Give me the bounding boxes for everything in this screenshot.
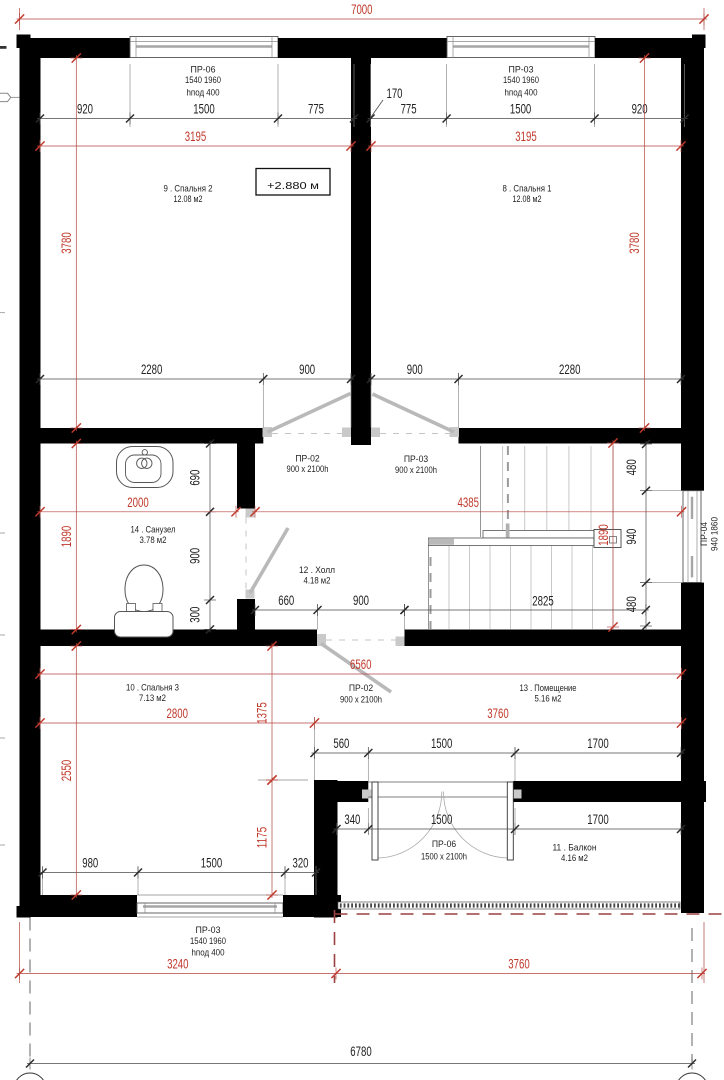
svg-text:1700: 1700: [587, 736, 608, 751]
svg-text:300: 300: [188, 607, 203, 623]
svg-text:2800: 2800: [167, 706, 188, 721]
svg-text:1375: 1375: [255, 702, 270, 723]
svg-text:3780: 3780: [627, 232, 642, 253]
svg-text:3195: 3195: [515, 129, 536, 144]
svg-text:940: 940: [624, 529, 639, 545]
svg-text:900: 900: [407, 362, 423, 377]
svg-text:ПР-06: ПР-06: [432, 839, 456, 849]
svg-text:1500: 1500: [510, 102, 531, 117]
svg-text:4385: 4385: [458, 495, 479, 510]
svg-text:ПР-06: ПР-06: [191, 65, 216, 75]
svg-text:ПР-03: ПР-03: [196, 925, 221, 935]
svg-text:ПР-03: ПР-03: [404, 454, 428, 464]
svg-text:560: 560: [333, 736, 349, 751]
svg-text:170: 170: [387, 86, 403, 101]
svg-text:7000: 7000: [351, 2, 372, 17]
svg-text:1890: 1890: [59, 526, 74, 547]
svg-text:3780: 3780: [59, 232, 74, 253]
svg-text:12.08 м2: 12.08 м2: [513, 194, 542, 205]
svg-text:ПР-04: ПР-04: [699, 522, 709, 546]
svg-text:775: 775: [308, 102, 324, 117]
svg-text:2000: 2000: [127, 495, 148, 510]
svg-text:3760: 3760: [487, 706, 508, 721]
svg-text:3240: 3240: [167, 957, 188, 972]
svg-text:980: 980: [82, 856, 98, 871]
svg-text:3.78 м2: 3.78 м2: [140, 535, 167, 546]
svg-text:ПР-03: ПР-03: [509, 65, 534, 75]
svg-text:2280: 2280: [141, 362, 162, 377]
svg-text:4.16 м2: 4.16 м2: [561, 853, 588, 864]
svg-text:5.16 м2: 5.16 м2: [535, 693, 562, 704]
svg-text:1700: 1700: [587, 812, 608, 827]
svg-text:320: 320: [293, 856, 309, 871]
svg-text:ПР-02: ПР-02: [349, 683, 373, 693]
svg-text:900 x 2100h: 900 x 2100h: [395, 465, 437, 475]
svg-text:920: 920: [77, 102, 93, 117]
svg-text:2825: 2825: [532, 594, 553, 609]
svg-text:2280: 2280: [559, 362, 580, 377]
svg-text:1500: 1500: [431, 812, 452, 827]
svg-text:1500: 1500: [201, 856, 222, 871]
svg-text:480: 480: [624, 459, 639, 475]
svg-text:1500: 1500: [431, 736, 452, 751]
svg-text:660: 660: [278, 593, 294, 608]
svg-text:1540 1960: 1540 1960: [185, 75, 221, 85]
svg-text:1500 x 2100h: 1500 x 2100h: [421, 852, 467, 862]
svg-text:3195: 3195: [185, 129, 206, 144]
svg-text:1890: 1890: [596, 524, 611, 545]
svg-text:690: 690: [188, 470, 203, 486]
svg-text:hпод 400: hпод 400: [192, 948, 225, 958]
svg-text:6560: 6560: [350, 657, 371, 672]
svg-text:hпод 400: hпод 400: [187, 87, 220, 97]
svg-text:1540 1960: 1540 1960: [503, 75, 539, 85]
svg-text:ПР-02: ПР-02: [295, 453, 319, 463]
svg-text:340: 340: [344, 812, 360, 827]
svg-text:900: 900: [353, 593, 369, 608]
svg-text:+2.880 м: +2.880 м: [267, 180, 319, 192]
svg-text:12.08 м2: 12.08 м2: [174, 194, 203, 205]
svg-text:3760: 3760: [508, 957, 529, 972]
svg-text:2550: 2550: [59, 760, 74, 781]
svg-text:6780: 6780: [350, 1044, 371, 1059]
svg-text:hпод 400: hпод 400: [505, 87, 538, 97]
svg-text:7.13 м2: 7.13 м2: [139, 693, 166, 704]
svg-text:940 1860: 940 1860: [710, 517, 720, 551]
svg-text:1175: 1175: [255, 827, 270, 848]
svg-text:1540 1960: 1540 1960: [190, 936, 226, 946]
svg-text:480: 480: [624, 596, 639, 612]
svg-text:4.18 м2: 4.18 м2: [304, 575, 331, 586]
svg-text:900: 900: [299, 362, 315, 377]
svg-text:900: 900: [188, 548, 203, 564]
svg-text:900 x 2100h: 900 x 2100h: [287, 464, 329, 474]
svg-text:1500: 1500: [193, 102, 214, 117]
svg-text:775: 775: [401, 102, 417, 117]
svg-text:900 x 2100h: 900 x 2100h: [340, 695, 382, 705]
svg-text:920: 920: [632, 102, 648, 117]
